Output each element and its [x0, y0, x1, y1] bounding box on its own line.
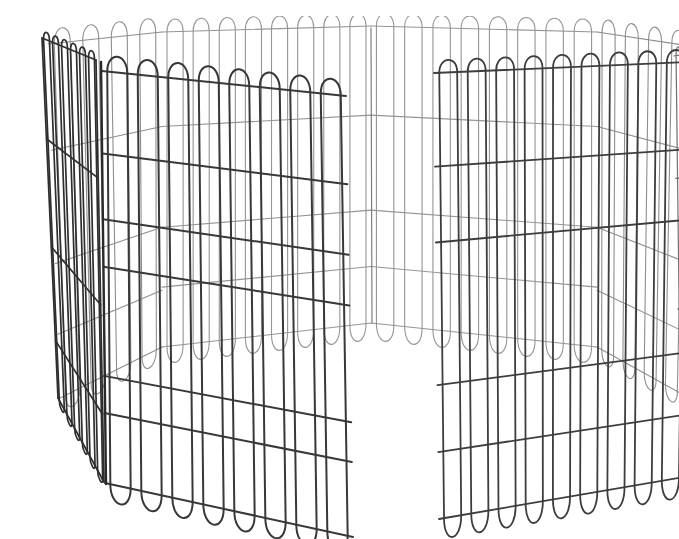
panel-front-left — [102, 57, 353, 539]
wire-bottom-loop — [546, 342, 563, 360]
wire-loop — [199, 66, 224, 509]
wire-loop — [229, 69, 254, 515]
wire-bottom-loop — [298, 330, 314, 348]
product-photo — [40, 16, 679, 539]
wire-bottom-loop — [644, 373, 656, 390]
horizontal-wire — [436, 220, 679, 243]
wire-loop — [260, 72, 286, 522]
wire-loop — [350, 16, 366, 325]
wire-loop — [168, 63, 192, 502]
bottom-rail — [439, 477, 679, 519]
wire-loop — [140, 19, 157, 357]
back-seam-wire — [371, 28, 372, 323]
wire-bottom-loop — [324, 327, 340, 345]
horizontal-wire — [435, 149, 679, 167]
wire-bottom-loop — [272, 333, 288, 351]
wire-loop — [376, 16, 393, 325]
panel-back-left — [162, 16, 371, 362]
pen-illustration — [40, 16, 679, 539]
wire-bottom-loop — [518, 339, 535, 357]
wire-bottom-loop — [574, 345, 591, 363]
wire-bottom-loop — [376, 324, 393, 342]
horizontal-wire — [438, 353, 679, 386]
wire-loop — [290, 76, 316, 530]
wire-bottom-loop — [142, 350, 156, 369]
wire-bottom-loop — [167, 345, 183, 363]
wire-loop — [405, 16, 422, 328]
wire-loop — [574, 19, 591, 346]
top-rail — [434, 62, 679, 73]
top-rail — [48, 32, 162, 44]
wire-bottom-loop — [350, 324, 366, 342]
wire-loop — [324, 16, 340, 328]
panel-gate-open — [434, 50, 679, 537]
wire-bottom-loop — [405, 327, 422, 345]
wire-bottom-loop — [665, 385, 677, 402]
horizontal-wire — [438, 415, 679, 452]
wire-loop — [518, 18, 535, 341]
wire-loop — [321, 79, 348, 536]
bottom-rail — [597, 347, 679, 394]
wire-loop — [107, 57, 130, 489]
